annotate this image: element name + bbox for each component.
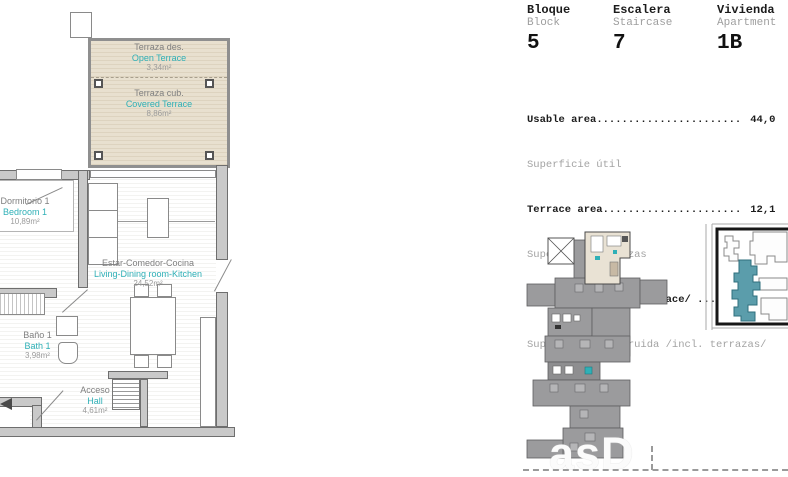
room-label-bath: Baño 1 Bath 1 3,98m² — [0, 330, 85, 361]
room-name-en: Bath 1 — [0, 341, 85, 352]
room-area: 3,98m² — [0, 351, 85, 360]
sheet-border-dashed — [651, 446, 653, 470]
area-row-usable-es: Superficie útil — [527, 158, 775, 173]
floorplan-sheet: Terraza des. Open Terrace 3,34m² Terraza… — [0, 0, 788, 477]
field-label-es: Escalera — [613, 4, 672, 17]
sofa — [88, 183, 118, 265]
coffee-table — [147, 198, 169, 238]
room-name-es: Dormitorio 1 — [0, 196, 75, 207]
column — [205, 79, 214, 88]
field-value: 5 — [527, 32, 570, 56]
room-area: 8,86m² — [104, 109, 214, 118]
room-name-es: Baño 1 — [0, 330, 85, 341]
key-plan-accent — [585, 367, 592, 374]
column — [205, 151, 214, 160]
room-name-es: Terraza cub. — [104, 88, 214, 99]
shower — [0, 293, 45, 315]
room-name-en: Covered Terrace — [104, 99, 214, 110]
header-field-staircase: Escalera Staircase 7 — [613, 4, 672, 56]
room-label-covered-terrace: Terraza cub. Covered Terrace 8,86m² — [104, 88, 214, 119]
wall — [108, 371, 168, 379]
bedroom-window — [16, 169, 62, 180]
kitchen-counter — [200, 317, 216, 427]
room-name-es: Estar-Comedor-Cocina — [78, 258, 218, 269]
highlighted-unit — [585, 232, 630, 284]
sheet-border-dashed — [523, 469, 788, 471]
room-area: 10,89m² — [0, 217, 75, 226]
room-name-en: Hall — [45, 396, 145, 407]
chair — [134, 355, 149, 368]
room-name-es: Terraza des. — [104, 42, 214, 53]
column — [94, 79, 103, 88]
field-label-en: Block — [527, 17, 570, 30]
wall — [0, 427, 235, 437]
room-label-bedroom: Dormitorio 1 Bedroom 1 10,89m² — [0, 196, 75, 227]
field-value: 7 — [613, 32, 672, 56]
chair — [157, 355, 172, 368]
header-field-apartment: Vivienda Apartment 1B — [717, 4, 776, 56]
room-area: 4,61m² — [45, 406, 145, 415]
exterior-patch — [0, 407, 30, 427]
roof-shaft — [70, 12, 92, 38]
room-area: 3,34m² — [104, 63, 214, 72]
header-field-block: Bloque Block 5 — [527, 4, 570, 56]
room-area: 24,52m² — [78, 279, 218, 288]
site-plan — [703, 220, 788, 335]
field-label-en: Staircase — [613, 17, 672, 30]
field-label-es: Bloque — [527, 4, 570, 17]
column — [94, 151, 103, 160]
room-name-es: Acceso — [45, 385, 145, 396]
entrance-arrow-icon — [0, 398, 12, 410]
terrace-divider-line — [91, 77, 227, 78]
room-name-en: Living-Dining room-Kitchen — [78, 269, 218, 280]
field-value: 1B — [717, 32, 776, 56]
room-label-hall: Acceso Hall 4,61m² — [45, 385, 145, 416]
room-name-en: Open Terrace — [104, 53, 214, 64]
area-row-usable: Usable area.......................44,0 — [527, 113, 775, 128]
wall — [216, 165, 228, 260]
field-label-en: Apartment — [717, 17, 776, 30]
dining-table — [130, 297, 176, 355]
terrace-sliding-door — [90, 170, 216, 178]
area-row-terrace: Terrace area......................12,1 — [527, 203, 775, 218]
stair-core-icon — [548, 238, 574, 264]
wall — [216, 292, 228, 427]
room-label-living: Estar-Comedor-Cocina Living-Dining room-… — [78, 258, 218, 289]
room-label-open-terrace: Terraza des. Open Terrace 3,34m² — [104, 42, 214, 73]
room-name-en: Bedroom 1 — [0, 207, 75, 218]
field-label-es: Vivienda — [717, 4, 776, 17]
